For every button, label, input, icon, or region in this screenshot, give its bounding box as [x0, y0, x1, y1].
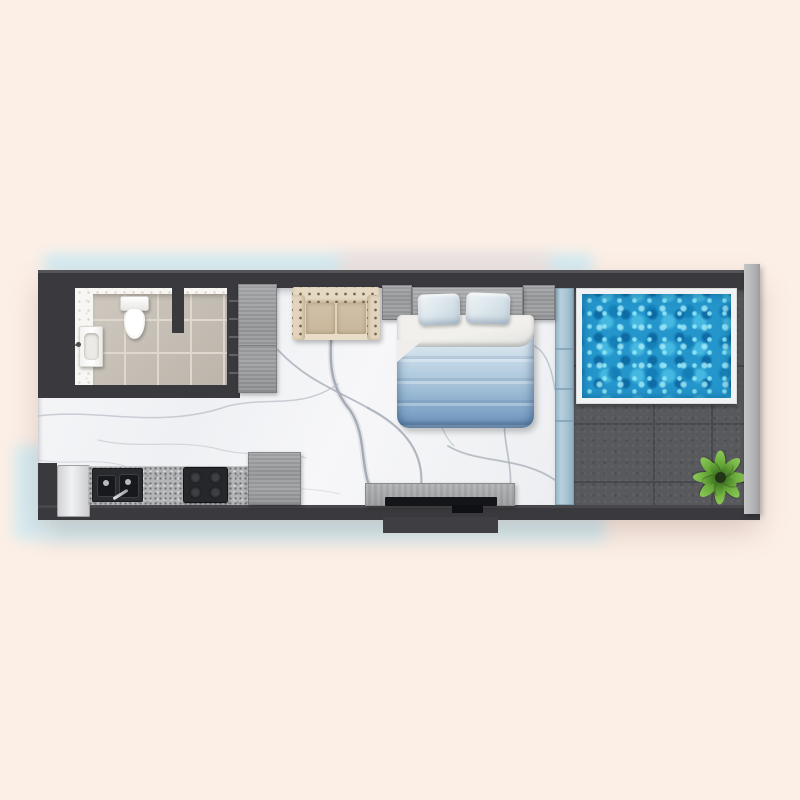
wardrobe [238, 284, 277, 393]
glass-wall [555, 288, 574, 505]
kitchen-sink [92, 468, 143, 502]
pool-water [582, 294, 731, 398]
floorplan-scene: { "scene": { "kind": "top-view 3D render… [0, 0, 800, 800]
faucet-knob-icon [76, 342, 81, 347]
sofa-cushion-right [337, 303, 366, 334]
duvet-fold-corner [397, 340, 423, 362]
glass-wall-seam [555, 348, 574, 350]
wall-left-upper [38, 270, 75, 398]
fridge [57, 465, 90, 517]
kitchen-cabinet [248, 452, 301, 505]
burner-icon [189, 471, 202, 484]
glass-wall-seam [555, 388, 574, 390]
basin-inset [84, 333, 99, 360]
sink-drain-icon [103, 480, 109, 486]
pillow-left [417, 293, 460, 325]
sofa-arm-left [292, 295, 305, 340]
burner-icon [209, 471, 222, 484]
wall-bathroom-bottom [38, 385, 240, 398]
burner-icon [189, 486, 202, 499]
tv-mount [452, 505, 483, 513]
plant-center [715, 472, 726, 483]
sofa-front-edge [305, 334, 367, 340]
glass-wall-seam [555, 420, 574, 422]
sink-drain-icon [125, 479, 131, 485]
sink-bowl-left [97, 475, 116, 497]
outer-rail [744, 264, 760, 514]
wall-stub-bathroom [172, 287, 184, 333]
wardrobe-seam [238, 345, 277, 346]
plant [692, 450, 748, 506]
sofa-cushion-left [306, 303, 335, 334]
sofa-arm-right [367, 295, 380, 340]
sofa [292, 287, 380, 340]
bathroom-tiles [93, 294, 227, 385]
burner-icon [209, 486, 222, 499]
wall-entry-step [383, 517, 498, 533]
pillow-right [465, 292, 510, 325]
cooktop [183, 467, 228, 503]
